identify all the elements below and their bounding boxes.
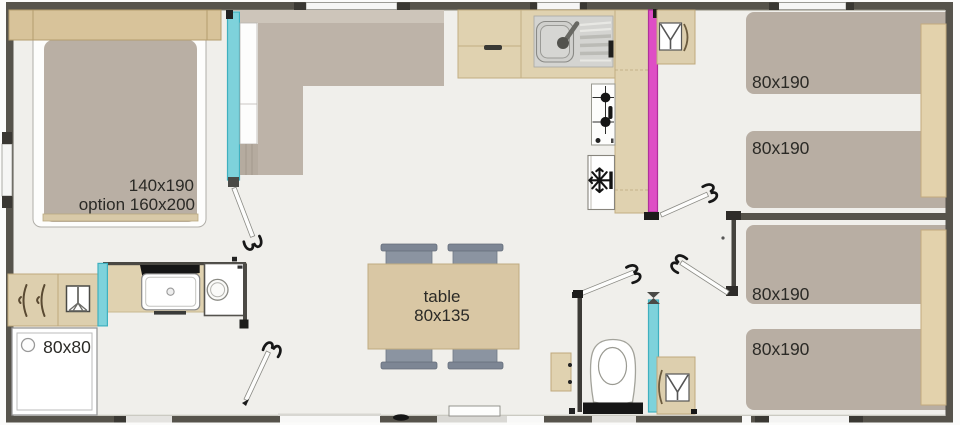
svg-text:140x190: 140x190 — [129, 176, 194, 195]
svg-text:80x135: 80x135 — [414, 306, 470, 325]
svg-text:80x190: 80x190 — [752, 72, 810, 92]
svg-text:80x190: 80x190 — [752, 339, 810, 359]
svg-text:80x190: 80x190 — [752, 284, 810, 304]
svg-text:option 160x200: option 160x200 — [79, 195, 195, 214]
svg-text:80x80: 80x80 — [43, 337, 91, 357]
svg-text:table: table — [424, 287, 461, 306]
svg-text:80x190: 80x190 — [752, 138, 810, 158]
